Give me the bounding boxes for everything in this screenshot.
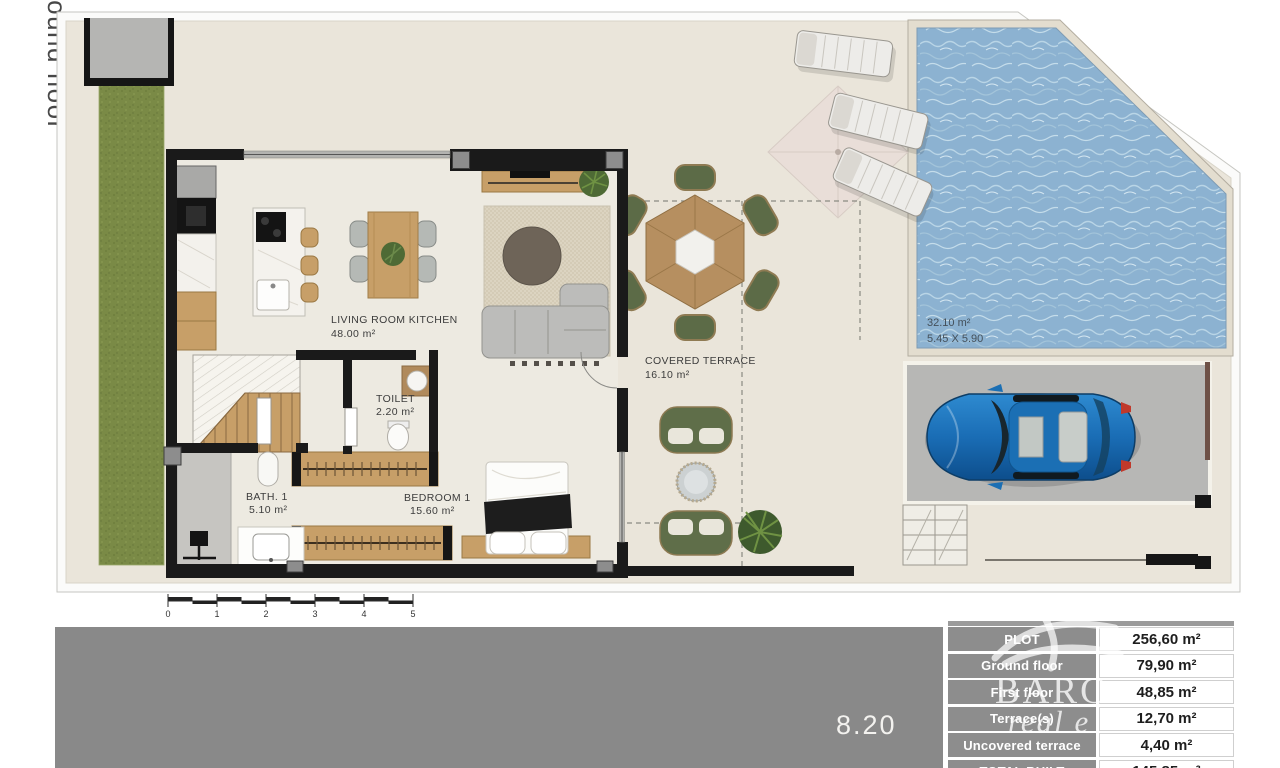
living-room-area: 48.00 m² (331, 328, 376, 340)
toilet-area: 2.20 m² (376, 406, 414, 418)
covered-terrace-label: COVERED TERRACE (645, 355, 756, 367)
tv-console (482, 168, 584, 192)
watermark-palm-icon (985, 606, 1145, 676)
floor-plan-page: ground floor (0, 0, 1280, 768)
exterior-stairs (903, 505, 967, 565)
door (257, 398, 271, 444)
parking-side-wall (1205, 362, 1210, 460)
wc (258, 452, 278, 486)
bottom-gray-band (55, 627, 943, 768)
bath-area: 5.10 m² (249, 504, 287, 516)
covered-terrace-area: 16.10 m² (645, 369, 690, 381)
scale-tick: 1 (214, 609, 219, 619)
plant (579, 167, 609, 197)
scale-tick: 5 (410, 609, 415, 619)
row-value: 4,40 m² (1099, 733, 1234, 757)
scale-tick: 4 (361, 609, 366, 619)
wardrobe (292, 452, 438, 486)
floor-plan: 32.10 m² 5.45 X 5.90 (0, 0, 1280, 622)
kitchen-island (253, 208, 305, 316)
pool-size-label: 5.45 X 5.90 (927, 333, 983, 345)
wall-block (1195, 495, 1211, 508)
bar-stool (301, 228, 318, 302)
round-rug (503, 227, 561, 285)
plot-width-dimension: 8.20 (836, 710, 956, 741)
scale-tick: 3 (312, 609, 317, 619)
bedroom-area: 15.60 m² (410, 505, 455, 517)
row-label: TOTAL BUILT (948, 760, 1096, 768)
pool-area-label: 32.10 m² (927, 317, 971, 329)
row-value: 145,85 m² (1099, 760, 1234, 768)
door (345, 408, 357, 446)
toilet-label: TOILET (376, 393, 415, 405)
living-room-label: LIVING ROOM KITCHEN (331, 314, 458, 326)
plant (738, 510, 782, 554)
row-value: 12,70 m² (1099, 707, 1234, 731)
outdoor-sofa (660, 407, 732, 453)
storage-block (84, 18, 174, 86)
table-row: Uncovered terrace 4,40 m² (948, 733, 1234, 757)
watermark-text: real e (1008, 704, 1090, 740)
bedroom-label: BEDROOM 1 (404, 492, 471, 504)
wardrobe (292, 526, 452, 560)
table-row: TOTAL BUILT 145,85 m² (948, 760, 1234, 768)
bath-label: BATH. 1 (246, 491, 288, 503)
wall-segment (1146, 554, 1198, 565)
car-top-view (925, 384, 1141, 490)
scale-tick: 2 (263, 609, 268, 619)
scale-bar: 0 1 2 3 4 5 (165, 594, 415, 619)
row-value: 48,85 m² (1099, 680, 1234, 704)
shower (177, 447, 231, 565)
staircase (193, 355, 300, 452)
grass-strip (99, 57, 164, 565)
pool (917, 28, 1226, 348)
kitchen-counter (176, 166, 216, 350)
outdoor-side-table (677, 463, 715, 501)
scale-tick: 0 (165, 609, 170, 619)
outdoor-sofa (660, 511, 732, 555)
